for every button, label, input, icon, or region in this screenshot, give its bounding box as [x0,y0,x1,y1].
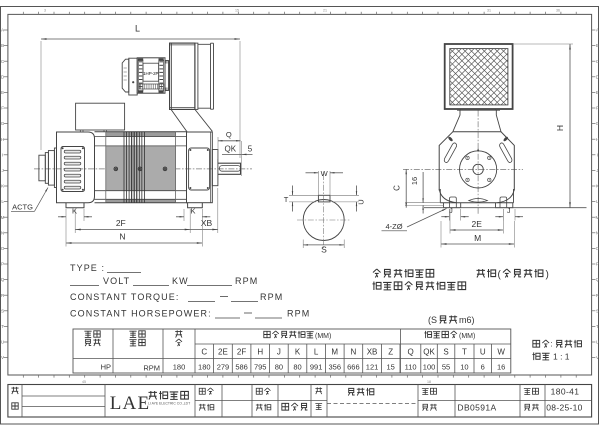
svg-text:2E: 2E [218,348,228,357]
svg-text:10: 10 [460,363,468,372]
svg-text::: : [550,340,552,349]
svg-text:Q: Q [226,130,232,139]
svg-text:21: 21 [323,9,327,13]
svg-text:P: P [1,262,4,267]
svg-text:279: 279 [217,363,230,372]
svg-text:VOLT: VOLT [103,276,130,286]
svg-text:T: T [462,348,467,357]
svg-text:80: 80 [275,363,283,372]
svg-text:N: N [351,348,357,357]
svg-text:M: M [1,215,5,220]
svg-text:M: M [474,233,481,243]
svg-text:G: G [596,121,600,126]
svg-text:LAE: LAE [110,393,151,414]
svg-text:31: 31 [487,9,491,13]
svg-text:(S: (S [428,315,437,325]
svg-text:795: 795 [254,363,267,372]
svg-text:(MM): (MM) [315,333,331,340]
svg-text:H: H [596,137,599,142]
svg-text:T: T [1,324,4,329]
svg-text:T: T [284,195,289,204]
svg-text:W: W [321,169,329,178]
svg-text:ACTG: ACTG [12,203,33,212]
svg-text:16: 16 [410,177,419,185]
svg-text:m6): m6) [459,315,475,325]
svg-text:6: 6 [481,363,485,372]
svg-text:Q: Q [596,277,600,282]
svg-text:H: H [1,137,4,142]
svg-text:O: O [1,246,5,251]
svg-text:K: K [72,207,77,216]
svg-text:CONSTANT TORQUE:: CONSTANT TORQUE: [70,292,179,302]
svg-text:E: E [596,90,599,95]
svg-text:N: N [596,230,599,235]
svg-text:5: 5 [248,144,253,153]
svg-text:M: M [595,215,599,220]
svg-text:Q: Q [1,277,5,282]
svg-text:2F: 2F [237,348,246,357]
svg-text:T: T [596,324,599,329]
svg-text:L: L [135,24,140,34]
svg-text:180-41: 180-41 [551,387,580,397]
svg-text:S: S [1,308,4,313]
svg-text:(MM): (MM) [459,333,475,340]
svg-text:KW: KW [172,276,189,286]
svg-text:3: 3 [44,9,46,13]
svg-text:U: U [480,348,486,357]
svg-text:G: G [1,121,5,126]
svg-text:80: 80 [293,363,301,372]
svg-text:Z: Z [388,348,393,357]
svg-text:J: J [507,208,511,215]
svg-text:121: 121 [366,363,379,372]
svg-text:08-25-10: 08-25-10 [546,403,582,413]
svg-text:I: I [597,152,598,157]
svg-text:55: 55 [442,363,450,372]
svg-text:100: 100 [423,363,436,372]
svg-text:18: 18 [427,380,431,384]
svg-text:B: B [1,43,4,48]
svg-text:W: W [497,348,505,357]
svg-text:S: S [321,245,327,255]
svg-text:RPM: RPM [260,292,283,302]
svg-text:RPM: RPM [235,276,258,286]
svg-text:J: J [277,348,281,357]
svg-text:36: 36 [556,9,560,13]
svg-text:S: S [443,348,448,357]
svg-text:586: 586 [235,363,248,372]
svg-text:N: N [1,230,4,235]
svg-text:356: 356 [329,363,342,372]
svg-text:15: 15 [235,9,239,13]
svg-text:O: O [596,246,600,251]
svg-text:991: 991 [310,363,323,372]
svg-text:U: U [596,340,599,345]
svg-text:2F: 2F [116,218,126,228]
svg-text:RPM: RPM [287,309,310,319]
svg-text:666: 666 [347,363,360,372]
svg-text:F: F [596,106,599,111]
svg-text:J: J [596,168,598,173]
svg-text:15: 15 [387,363,395,372]
svg-text:180: 180 [173,363,186,372]
svg-text:45: 45 [82,380,86,384]
svg-text:2E: 2E [471,219,482,229]
svg-text:N: N [119,232,125,242]
svg-text:RPM: RPM [143,364,160,373]
svg-text:K: K [190,207,195,216]
svg-text:P: P [596,262,599,267]
svg-text:DB0591A: DB0591A [457,403,496,413]
svg-text:XB: XB [201,218,213,228]
svg-text:S: S [596,308,599,313]
svg-text:U: U [1,340,4,345]
svg-text:M: M [331,348,338,357]
svg-text:C: C [201,348,207,357]
svg-text:): ) [546,270,549,281]
svg-text:C: C [393,185,402,191]
svg-text:CONSTANT HORSEPOWER:: CONSTANT HORSEPOWER: [70,309,212,319]
svg-text:QK: QK [423,348,435,357]
svg-text:HP: HP [101,363,111,372]
svg-text:16: 16 [497,363,505,372]
svg-text:LI AYE ELECTRIC CO.,LDT: LI AYE ELECTRIC CO.,LDT [148,402,190,406]
svg-text:Q: Q [408,348,414,357]
svg-text:180: 180 [198,363,211,372]
svg-text:B: B [596,43,599,48]
svg-text:TYPE :: TYPE : [70,263,105,273]
svg-text:F: F [1,106,4,111]
svg-text:J: J [1,168,3,173]
svg-text:L: L [314,348,319,357]
svg-text:QK: QK [225,144,237,153]
svg-text:L: L [596,199,599,204]
svg-text:H: H [555,125,565,131]
svg-text:L: L [1,199,4,204]
svg-text:K: K [295,348,301,357]
svg-text:4-ZØ: 4-ZØ [385,222,402,231]
svg-text:1HP-2P: 1HP-2P [143,71,158,76]
svg-text:U: U [357,199,366,204]
svg-text:110: 110 [405,363,417,372]
svg-text:I: I [2,152,3,157]
svg-text:XB: XB [367,348,378,357]
svg-text:1 : 1: 1 : 1 [553,352,570,362]
svg-text:E: E [1,90,4,95]
svg-text:H: H [257,348,263,357]
